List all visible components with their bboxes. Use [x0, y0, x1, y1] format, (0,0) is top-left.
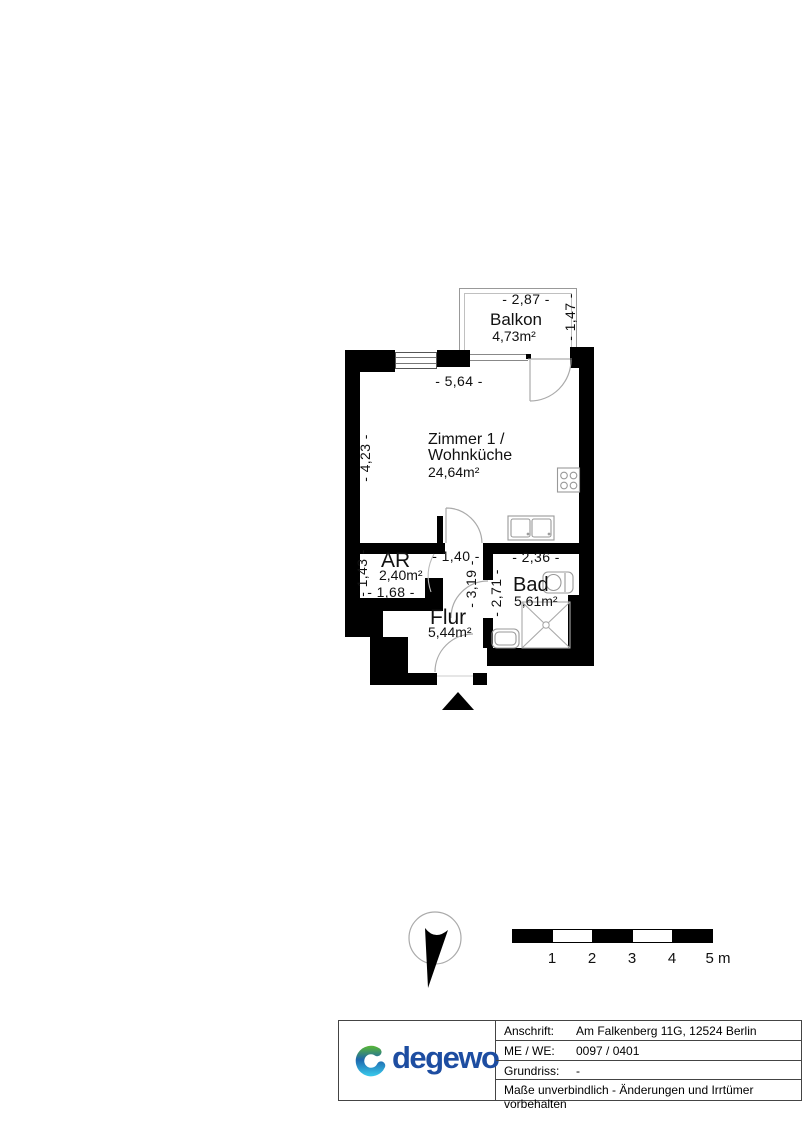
title-row-value: -: [576, 1064, 580, 1078]
scale-bar: [512, 929, 713, 943]
title-row-disclaimer: Maße unverbindlich - Änderungen und Irrt…: [496, 1080, 801, 1100]
balcony-door-arc: [530, 360, 571, 401]
wall: [579, 368, 594, 602]
dim-flur-height: - 3,19 -: [463, 560, 479, 608]
title-block: degewo Anschrift: Am Falkenberg 11G, 125…: [338, 1020, 802, 1101]
scale-segment: [513, 930, 553, 942]
title-row-value: Am Falkenberg 11G, 12524 Berlin: [576, 1024, 757, 1038]
floorplan-page: - 2,87 - Balkon 4,73m² - 1,47 - - 5,64 -…: [0, 0, 806, 1140]
dim-balkon-width: - 2,87 -: [502, 291, 550, 307]
scale-label-2: 2: [588, 950, 596, 967]
title-row-value: 0097 / 0401: [576, 1044, 639, 1058]
room-label-zimmer-line2: Wohnküche: [428, 448, 512, 464]
wall: [487, 648, 594, 666]
stove-icon: [558, 468, 580, 492]
room-area-zimmer: 24,64m²: [428, 465, 512, 481]
wall: [570, 347, 594, 368]
title-row-anschrift: Anschrift: Am Falkenberg 11G, 12524 Berl…: [496, 1021, 801, 1041]
wall: [437, 516, 443, 543]
scale-segment: [553, 930, 593, 942]
logo-cell: degewo: [339, 1021, 496, 1100]
scale-segment: [593, 930, 633, 942]
title-row-label: Grundriss:: [504, 1064, 559, 1078]
wall: [483, 618, 493, 648]
entry-arrow: [442, 692, 474, 710]
degewo-logo-text: degewo: [392, 1040, 498, 1076]
bath-sink-icon: [492, 629, 519, 648]
window: [395, 352, 437, 369]
wall: [370, 637, 408, 673]
title-row-mewe: ME / WE: 0097 / 0401: [496, 1041, 801, 1061]
scale-label-4: 4: [668, 950, 676, 967]
scale-segment: [673, 930, 712, 942]
title-row-grundriss: Grundriss: -: [496, 1061, 801, 1080]
room-label-balkon: Balkon: [490, 310, 542, 330]
north-arrow-icon: [409, 912, 461, 988]
dim-ar-width: - 1,68 -: [367, 584, 415, 600]
room-area-flur: 5,44m²: [428, 624, 472, 640]
dim-zimmer-height: - 4,23 -: [357, 434, 373, 482]
room-area-balkon: 4,73m²: [492, 328, 536, 344]
room-area-ar: 2,40m²: [379, 567, 423, 583]
title-row-label: Anschrift:: [504, 1024, 554, 1038]
room-area-bad: 5,61m²: [514, 593, 558, 609]
kitchen-sink-icon: [508, 516, 554, 540]
dim-bad-height: - 2,71 -: [488, 569, 504, 617]
wall: [568, 595, 594, 652]
room-label-zimmer: Zimmer 1 / Wohnküche 24,64m²: [428, 432, 512, 481]
dim-zimmer-width: - 5,64 -: [435, 373, 483, 389]
window-balcony-sill: [470, 354, 528, 361]
degewo-logo-icon: [353, 1041, 393, 1085]
room-label-zimmer-line1: Zimmer 1 /: [428, 432, 512, 448]
scale-label-5: 5 m: [705, 950, 730, 967]
wall: [345, 608, 383, 637]
title-block-rows: Anschrift: Am Falkenberg 11G, 12524 Berl…: [496, 1021, 801, 1100]
scale-label-1: 1: [548, 950, 556, 967]
title-row-label: ME / WE:: [504, 1044, 555, 1058]
door-hinge: [526, 354, 531, 359]
wall: [370, 673, 437, 685]
scale-segment: [633, 930, 673, 942]
wall: [345, 350, 395, 372]
dim-balkon-height: - 1,47 -: [562, 293, 578, 341]
room-door-arc: [446, 508, 482, 543]
disclaimer-text: Maße unverbindlich - Änderungen und Irrt…: [504, 1083, 801, 1111]
scale-label-3: 3: [628, 950, 636, 967]
wall: [473, 673, 487, 685]
dim-bad-width: - 2,36 -: [512, 549, 560, 565]
wall: [437, 350, 470, 367]
